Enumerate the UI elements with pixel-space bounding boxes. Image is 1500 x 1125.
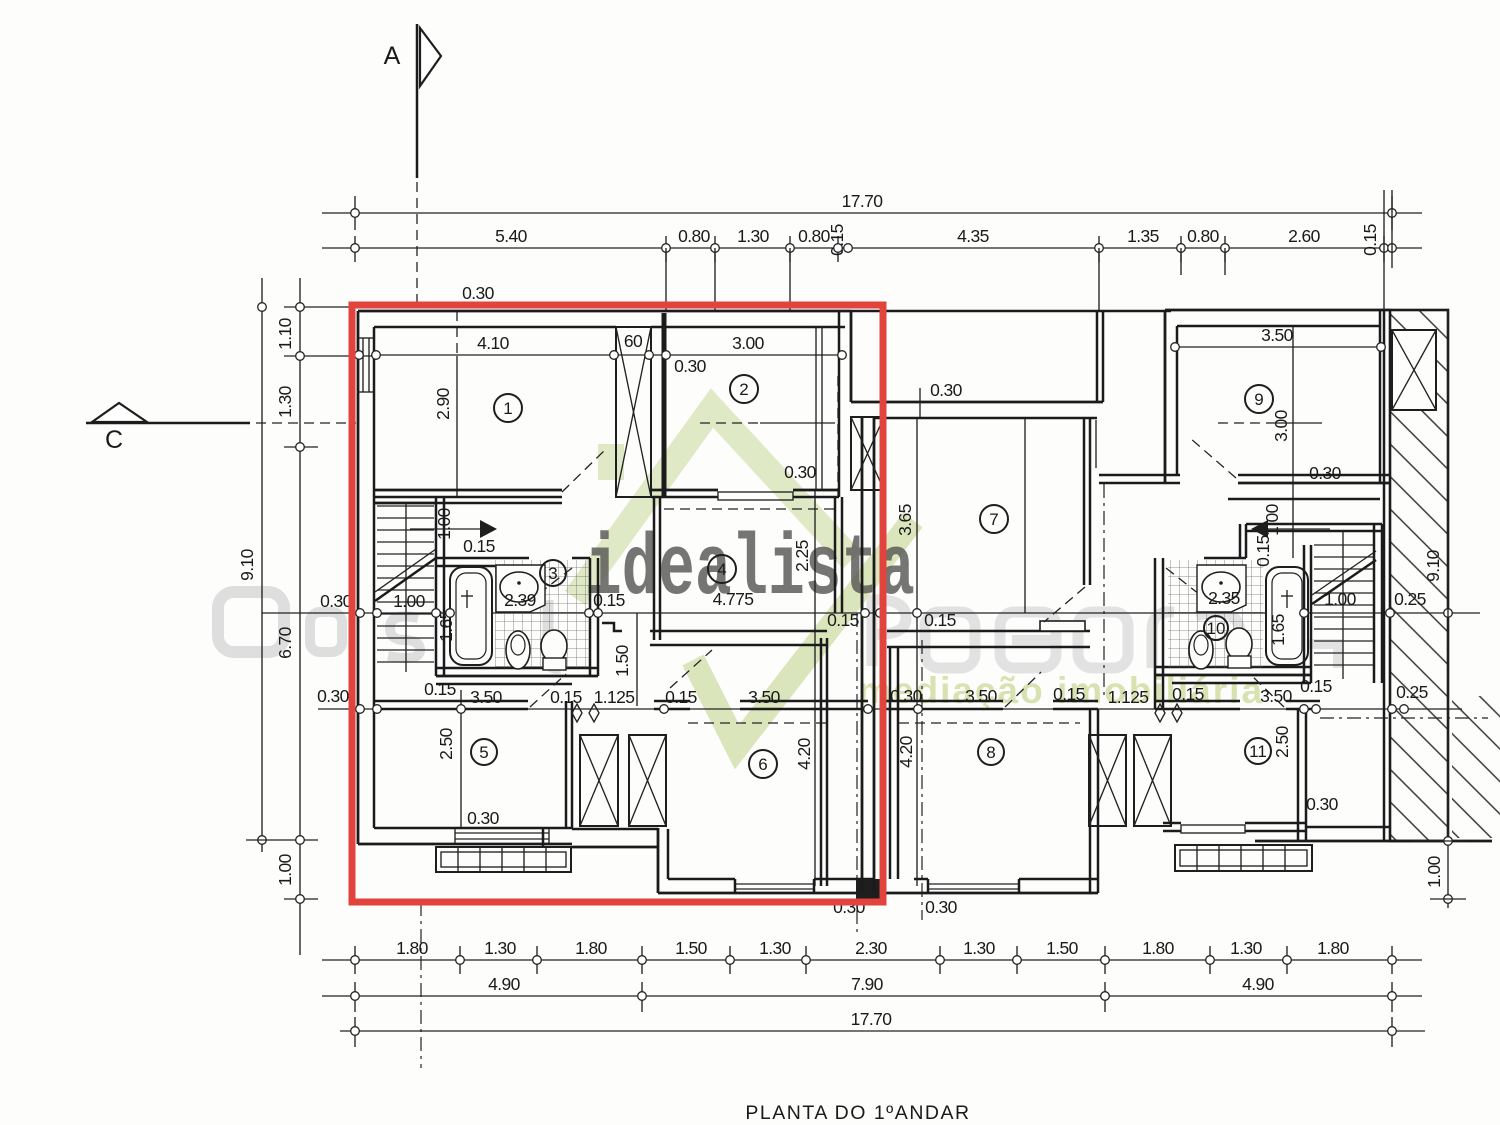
svg-text:1.35: 1.35: [1127, 226, 1159, 246]
svg-text:0.80: 0.80: [678, 226, 711, 246]
svg-text:0.15: 0.15: [827, 610, 859, 630]
svg-text:4.35: 4.35: [957, 226, 989, 246]
svg-text:11: 11: [1249, 742, 1267, 761]
svg-text:0.15: 0.15: [924, 610, 956, 630]
svg-text:3.50: 3.50: [470, 687, 503, 707]
svg-text:1.00: 1.00: [434, 507, 454, 540]
svg-text:1.00: 1.00: [1262, 503, 1282, 536]
svg-text:1.125: 1.125: [594, 687, 635, 707]
svg-text:3: 3: [548, 564, 557, 583]
svg-text:3.00: 3.00: [732, 333, 765, 353]
svg-text:1.80: 1.80: [575, 938, 608, 958]
svg-text:0.15: 0.15: [463, 536, 495, 556]
svg-text:0.30: 0.30: [462, 283, 495, 303]
svg-text:1.125: 1.125: [1108, 687, 1149, 707]
svg-text:4.10: 4.10: [477, 333, 510, 353]
svg-text:0.15: 0.15: [1172, 684, 1204, 704]
svg-text:2: 2: [739, 380, 748, 399]
svg-text:1.00: 1.00: [275, 853, 295, 886]
svg-text:0.25: 0.25: [1394, 589, 1426, 609]
svg-text:1.50: 1.50: [612, 644, 632, 677]
svg-text:8: 8: [986, 743, 995, 762]
svg-text:0.15: 0.15: [1360, 224, 1380, 256]
svg-text:4.20: 4.20: [794, 737, 814, 770]
svg-text:3.50: 3.50: [1261, 325, 1294, 345]
svg-text:3.50: 3.50: [1260, 686, 1293, 706]
svg-text:2.50: 2.50: [436, 727, 456, 760]
svg-text:0.30: 0.30: [317, 686, 350, 706]
svg-text:0.30: 0.30: [1309, 463, 1342, 483]
svg-text:17.70: 17.70: [851, 1009, 893, 1029]
svg-text:2.90: 2.90: [433, 387, 453, 420]
svg-text:C: C: [105, 426, 123, 454]
svg-text:1.00: 1.00: [1424, 855, 1444, 888]
svg-text:1.30: 1.30: [1230, 938, 1263, 958]
svg-text:0.80: 0.80: [1187, 226, 1220, 246]
svg-text:1.00: 1.00: [393, 591, 426, 611]
svg-text:1.65: 1.65: [1268, 614, 1288, 646]
svg-text:60: 60: [624, 331, 643, 351]
svg-text:1.50: 1.50: [1046, 938, 1079, 958]
svg-text:3.50: 3.50: [748, 687, 781, 707]
svg-text:3.50: 3.50: [965, 686, 998, 706]
svg-text:3.65: 3.65: [895, 504, 915, 536]
svg-text:4.90: 4.90: [1242, 974, 1275, 994]
svg-text:1.30: 1.30: [484, 938, 517, 958]
svg-text:4: 4: [717, 560, 726, 579]
svg-text:7.90: 7.90: [851, 974, 884, 994]
svg-text:1.80: 1.80: [396, 938, 429, 958]
svg-text:4.20: 4.20: [896, 735, 916, 768]
svg-text:5: 5: [479, 743, 488, 762]
svg-text:9.10: 9.10: [237, 548, 257, 581]
svg-text:4.90: 4.90: [488, 974, 521, 994]
svg-text:0.15: 0.15: [593, 590, 625, 610]
svg-text:2.35: 2.35: [1208, 588, 1240, 608]
svg-text:0.30: 0.30: [890, 686, 923, 706]
svg-text:0.30: 0.30: [925, 897, 958, 917]
svg-text:0.25: 0.25: [1396, 682, 1428, 702]
svg-text:2.60: 2.60: [1288, 226, 1321, 246]
svg-text:1.10: 1.10: [275, 317, 295, 350]
svg-text:1.80: 1.80: [1142, 938, 1175, 958]
svg-text:0.15: 0.15: [424, 679, 456, 699]
svg-text:0.80: 0.80: [798, 226, 831, 246]
svg-text:9: 9: [1254, 390, 1263, 409]
svg-text:2.39: 2.39: [504, 590, 536, 610]
svg-text:0.15: 0.15: [1300, 676, 1332, 696]
svg-text:0.30: 0.30: [1306, 794, 1339, 814]
svg-text:2.25: 2.25: [792, 540, 812, 572]
svg-text:0.30: 0.30: [784, 462, 817, 482]
svg-text:0.30: 0.30: [930, 380, 963, 400]
svg-text:3.00: 3.00: [1271, 409, 1291, 442]
svg-text:1.30: 1.30: [963, 938, 996, 958]
svg-text:1.30: 1.30: [737, 226, 770, 246]
svg-text:6.70: 6.70: [275, 626, 295, 659]
svg-text:0.15: 0.15: [665, 687, 697, 707]
svg-text:PLANTA DO 1ºANDAR: PLANTA DO 1ºANDAR: [745, 1102, 970, 1124]
svg-text:0.30: 0.30: [320, 591, 353, 611]
svg-text:1.00: 1.00: [1324, 589, 1357, 609]
svg-text:1: 1: [503, 399, 512, 418]
svg-text:10: 10: [1207, 619, 1226, 638]
svg-text:0.30: 0.30: [467, 808, 500, 828]
svg-text:6: 6: [758, 755, 767, 774]
svg-text:0.30: 0.30: [674, 356, 707, 376]
svg-text:A: A: [384, 42, 401, 70]
svg-text:1.50: 1.50: [675, 938, 708, 958]
svg-text:0.15: 0.15: [1053, 684, 1085, 704]
svg-text:17.70: 17.70: [842, 191, 884, 211]
svg-text:1.80: 1.80: [1317, 938, 1350, 958]
svg-text:4.775: 4.775: [713, 589, 754, 609]
svg-text:1.30: 1.30: [275, 385, 295, 418]
svg-text:1.30: 1.30: [759, 938, 792, 958]
svg-text:7: 7: [989, 510, 998, 529]
svg-text:0.15: 0.15: [1253, 535, 1273, 567]
svg-text:9.10: 9.10: [1423, 549, 1443, 582]
svg-text:2.50: 2.50: [1272, 725, 1292, 758]
svg-text:2.30: 2.30: [855, 938, 888, 958]
svg-text:5.40: 5.40: [495, 226, 528, 246]
